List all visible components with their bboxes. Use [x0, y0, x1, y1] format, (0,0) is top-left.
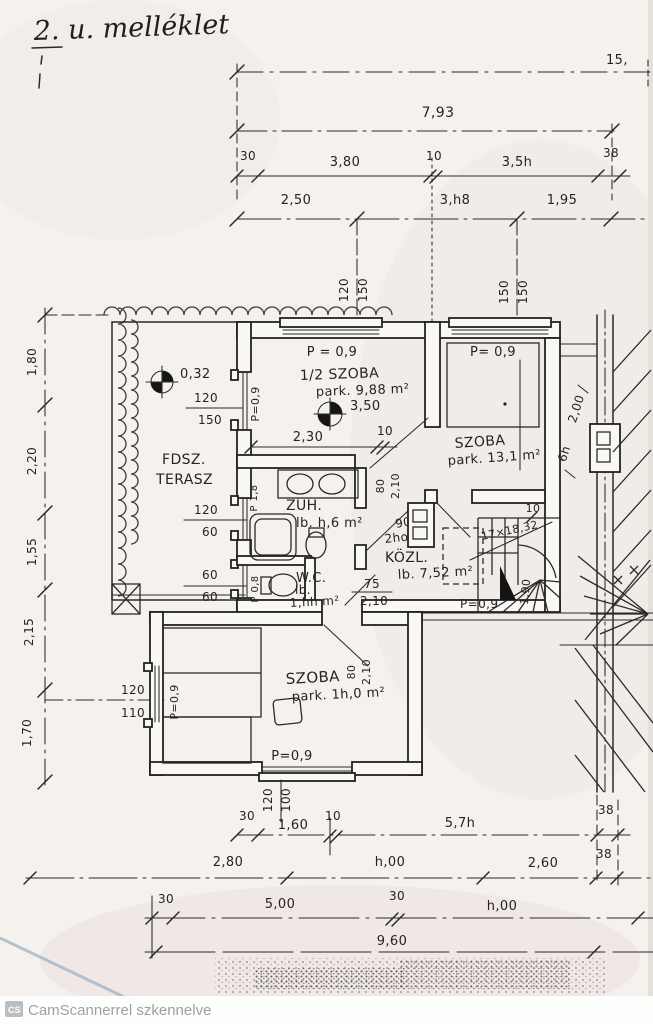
dim-label: 10 [526, 502, 541, 515]
dim-label: 2,10 [360, 659, 373, 685]
dim-label: 1,55 [25, 538, 39, 566]
room-area: 1,hh m² [289, 593, 339, 610]
dim-label: 10 [426, 149, 442, 163]
dim-label: 2ho [384, 530, 409, 546]
dim-label: 10 [325, 809, 341, 823]
dim-label: 10 [377, 424, 393, 438]
dim-label: 30 [240, 149, 256, 163]
dim-label: 30 [389, 889, 405, 903]
dim-label: 2,30 [293, 430, 324, 445]
room-name: 1/2 SZOBA [300, 365, 380, 384]
parapet-label: P= 0,9 [470, 345, 516, 360]
dim-label: 3,h8 [440, 193, 471, 208]
level-value: 0,32 [180, 367, 211, 382]
dim-label: 60 [202, 590, 218, 604]
room-name: TERASZ [155, 472, 213, 488]
dim-label: 60 [202, 568, 218, 582]
dim-label: 75 [364, 577, 380, 591]
dim-label: 150 [198, 413, 222, 427]
room-area: lb. h,6 m² [296, 516, 363, 531]
dim-label: 1,95 [547, 193, 578, 208]
dim-label: 2,80 [213, 855, 244, 870]
dim-label-overall: 15, [606, 53, 628, 68]
dim-label-window: 150 [516, 280, 530, 304]
level-value: 3,50 [350, 399, 381, 414]
room-name: ZUH. [286, 498, 322, 514]
dim-label: 80 [345, 665, 358, 680]
dim-label-window: 120 [121, 683, 145, 697]
dim-label-window: 110 [121, 706, 145, 720]
scanned-floorplan-page: 2. u. melléklet 15, 7,93 30 3,80 10 3,5h… [0, 0, 653, 1024]
floorplan-drawing: 2. u. melléklet 15, 7,93 30 3,80 10 3,5h… [0, 0, 653, 1024]
parapet-label: P 0,8 [250, 575, 261, 602]
chimney-right [590, 424, 620, 472]
dim-label: 3,80 [330, 155, 361, 170]
dim-label-window: 150 [356, 278, 370, 302]
dim-label: 2,50 [281, 193, 312, 208]
parapet-label: P=0,9 [249, 386, 262, 421]
parapet-label: P=0,9 [460, 597, 498, 611]
dim-label: 2,10 [360, 594, 388, 608]
dim-label: 5,00 [265, 897, 296, 912]
dim-label-window: 120 [337, 278, 351, 302]
dim-label-window: 150 [497, 280, 511, 304]
room-name: SZOBA [285, 667, 340, 688]
parapet-label: P = 0,9 [307, 345, 357, 360]
dim-label: 2,60 [528, 856, 559, 871]
camscanner-logo-text: CS [8, 1005, 21, 1015]
dim-label: 5,7h [445, 816, 476, 831]
dim-label: 2,15 [22, 618, 36, 646]
parapet-label: P 1,8 [249, 484, 260, 511]
dim-label: 1,60 [278, 818, 309, 833]
dim-label: 38 [603, 146, 619, 160]
dim-label-window: 120 [261, 788, 275, 812]
chimney [408, 503, 434, 547]
dim-label: h,00 [487, 899, 518, 914]
dim-label: 80 [374, 479, 387, 494]
parapet-label: P=0,9 [271, 749, 312, 764]
dim-label-total-width: 7,93 [422, 105, 455, 121]
dim-label: 38 [596, 847, 612, 861]
dim-label: 120 [194, 503, 218, 517]
dim-label: 120 [194, 391, 218, 405]
room-name: KÖZL. [385, 548, 428, 566]
dim-label: 3,5h [502, 155, 533, 170]
dim-label: 1,70 [20, 719, 34, 747]
room-name: FDSZ. [162, 452, 206, 468]
stair-run-label: 1,90 [518, 578, 533, 605]
dim-label: 60 [202, 525, 218, 539]
dim-label: 2,10 [389, 473, 402, 499]
dim-label: h,00 [375, 855, 406, 870]
dim-label: 1,80 [25, 348, 39, 376]
camscanner-watermark: CS CamScannerrel szkennelve [0, 996, 653, 1024]
watermark-text: CamScannerrel szkennelve [28, 1002, 211, 1019]
dim-label: 30 [158, 892, 174, 906]
dim-label: 2,20 [25, 447, 39, 475]
dim-label: 38 [598, 803, 614, 817]
dim-label: 30 [239, 809, 255, 823]
parapet-label: P=0,9 [168, 684, 181, 719]
dim-label-total: 9,60 [377, 934, 408, 949]
